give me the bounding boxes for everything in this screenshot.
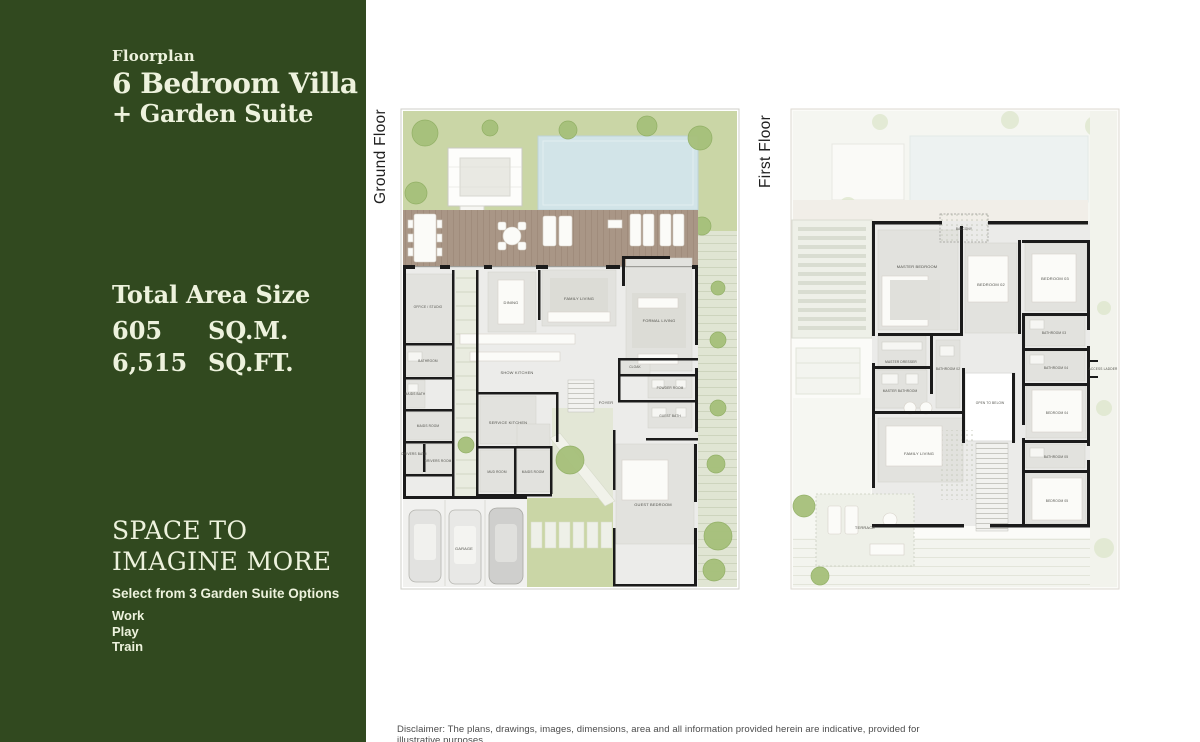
disclaimer-text: Disclaimer: The plans, drawings, images,…	[397, 724, 937, 742]
room-label-bathroom-02: BATHROOM 02	[936, 367, 960, 371]
room-label-maids-bath: MAIDS BATH	[405, 392, 426, 396]
area-sqft-unit: SQ.FT.	[208, 347, 294, 379]
room-label-powder-room: POWDER ROOM	[657, 386, 684, 390]
room-label-balcony: BALCONY	[956, 227, 973, 231]
ghost-pool	[910, 136, 1088, 202]
area-row-sqft: 6,515 SQ.FT.	[112, 347, 310, 379]
garden-pavilion	[448, 148, 522, 211]
option-play: Play	[112, 624, 339, 640]
room-label-guest-bedroom: GUEST BEDROOM	[634, 502, 671, 507]
room-label-bathroom-03: BATHROOM 03	[1042, 331, 1066, 335]
pergola-louvers	[792, 220, 872, 394]
room-label-maids-room-2: MAIDS ROOM	[522, 470, 545, 474]
total-area-block: Total Area Size 605 SQ.M. 6,515 SQ.FT.	[112, 280, 310, 380]
room-label-bathroom: BATHROOM	[418, 359, 438, 363]
area-sqm-unit: SQ.M.	[208, 315, 288, 347]
garage-cars	[409, 500, 523, 586]
room-label-show-kitchen: SHOW KITCHEN	[501, 370, 534, 375]
option-train: Train	[112, 639, 339, 655]
tagline: SPACE TO IMAGINE MORE	[112, 515, 331, 578]
room-label-access-ladder: ACCESS LADDER	[1089, 367, 1118, 371]
area-sqm-value: 605	[112, 315, 208, 347]
title-block: Floorplan 6 Bedroom Villa + Garden Suite	[112, 47, 358, 129]
room-label-master-bathroom: MASTER BATHROOM	[883, 389, 918, 393]
room-label-foyer: FOYER	[599, 400, 614, 405]
room-label-drivers-room: DRIVERS ROOM	[425, 459, 452, 463]
room-label-office-studio: OFFICE / STUDIO	[414, 305, 443, 309]
room-label-bedroom-02: BEDROOM 02	[977, 282, 1005, 287]
swimming-pool	[538, 136, 698, 210]
first-floor-label: First Floor	[757, 108, 775, 188]
room-label-service-kitchen: SERVICE KITCHEN	[489, 420, 527, 425]
garden-suite-options: Select from 3 Garden Suite Options Work …	[112, 586, 339, 655]
villa-title-line1: 6 Bedroom Villa	[112, 68, 358, 99]
room-label-cloak: CLOAK	[629, 365, 641, 369]
room-label-bathroom-05: BATHROOM 05	[1044, 455, 1068, 459]
room-label-bedroom-04: BEDROOM 04	[1046, 411, 1068, 415]
room-label-family-living: FAMILY LIVING	[564, 296, 594, 301]
area-row-sqm: 605 SQ.M.	[112, 315, 310, 347]
room-label-dining: DINING	[504, 300, 519, 305]
room-label-family-living-first: FAMILY LIVING	[904, 451, 934, 456]
room-label-formal-living: FORMAL LIVING	[643, 318, 676, 323]
room-label-garage: GARAGE	[455, 546, 473, 551]
room-label-maids-room: MAIDS ROOM	[417, 424, 440, 428]
option-work: Work	[112, 608, 339, 624]
villa-title-line2: + Garden Suite	[112, 99, 358, 129]
room-label-bedroom-05: BEDROOM 05	[1046, 499, 1068, 503]
tagline-line2: IMAGINE MORE	[112, 546, 331, 577]
room-label-drivers-bath: DRIVERS BATH	[401, 452, 427, 456]
first-floor-plan: MASTER BEDROOM BALCONY BEDROOM 02 BEDROO…	[790, 108, 1120, 590]
room-label-open-to-below: OPEN TO BELOW	[976, 401, 1005, 405]
total-area-heading: Total Area Size	[112, 280, 310, 309]
info-panel: Floorplan 6 Bedroom Villa + Garden Suite…	[0, 0, 366, 742]
room-label-master-bedroom: MASTER BEDROOM	[897, 264, 938, 269]
options-heading: Select from 3 Garden Suite Options	[112, 586, 339, 601]
room-label-master-dresser: MASTER DRESSER	[885, 360, 917, 364]
room-label-bedroom-03: BEDROOM 03	[1041, 276, 1069, 281]
room-label-guest-bath: GUEST BATH	[659, 414, 681, 418]
room-label-terrace: TERRACE	[855, 525, 875, 530]
area-sqft-value: 6,515	[112, 347, 208, 379]
tagline-line1: SPACE TO	[112, 515, 331, 546]
ground-floor-label: Ground Floor	[372, 108, 390, 204]
room-label-bathroom-04: BATHROOM 04	[1044, 366, 1068, 370]
brochure-page: Floorplan 6 Bedroom Villa + Garden Suite…	[0, 0, 1200, 742]
floorplan-eyebrow: Floorplan	[112, 47, 358, 65]
ground-floor-plan: DINING FAMILY LIVING FORMAL LIVING SHOW …	[400, 108, 740, 590]
room-label-mud-room: MUD ROOM	[487, 470, 506, 474]
